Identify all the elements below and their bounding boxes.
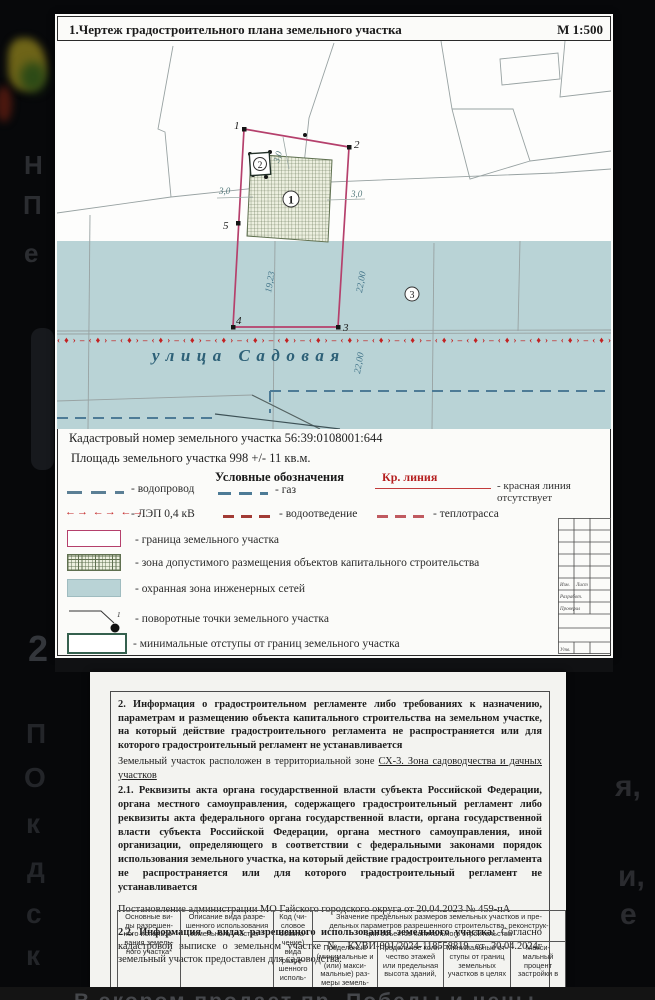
table-col-description: Описание вида разре- шенного использован… xyxy=(181,911,274,991)
table-sub-limits: Предельные (минимальные и (или) макси- м… xyxy=(313,942,378,991)
red-line-desc: - красная линия отсутствует xyxy=(497,480,613,504)
plot-area: Площадь земельного участка 998 +/- 11 кв… xyxy=(71,451,311,466)
table-group-header: Значение предельных размеров земельных у… xyxy=(313,911,566,942)
gas-symbol xyxy=(218,492,268,495)
zone-1-number: 1 xyxy=(288,193,294,207)
bg-letter: П xyxy=(26,718,46,750)
gas-label: - газ xyxy=(275,484,296,496)
red-line-symbol xyxy=(375,488,491,489)
svg-text:Изм.: Изм. xyxy=(559,583,570,588)
min-offsets-symbol xyxy=(67,633,127,654)
zone-3-number: 3 xyxy=(410,290,415,301)
bg-letter: е xyxy=(24,238,38,269)
svg-text:1: 1 xyxy=(234,120,240,132)
table-col-main-uses: Основные ви- ды разрешен- ного использо-… xyxy=(118,911,181,991)
legend-header: Условные обозначения xyxy=(215,470,344,485)
red-line-label: Кр. линия xyxy=(382,470,437,485)
parameters-table: Основные ви- ды разрешен- ного использо-… xyxy=(117,910,566,991)
document-page-1[interactable]: 1.Чертеж градостроительного плана земель… xyxy=(55,14,613,658)
svg-text:2: 2 xyxy=(354,139,360,151)
zone-2-number: 2 xyxy=(257,160,263,171)
water-supply-label: - водопровод xyxy=(131,483,194,495)
bg-letter: с xyxy=(26,898,42,930)
construction-zone-label: - зона допустимого размещения объектов к… xyxy=(135,557,479,569)
svg-text:3,0: 3,0 xyxy=(218,186,231,196)
bottom-clipped-text: В экором продает пр. Победы и цены xyxy=(74,990,536,1000)
bg-letter: д xyxy=(27,852,45,884)
water-supply-symbol xyxy=(67,491,124,494)
sewerage-label: - водоотведение xyxy=(279,508,357,520)
heating-symbol xyxy=(377,515,427,518)
protection-zone-label: - охранная зона инженерных сетей xyxy=(135,583,305,595)
zone-statement: Земельный участок расположен в территори… xyxy=(118,756,378,767)
table-sub-offsets: Минимальные от- ступы от границ земельны… xyxy=(444,942,511,991)
site-plan-svg: 2 1 3 1 2 3 4 5 3,0 3,0 3,0 19,2 xyxy=(57,41,611,429)
screenshot-root: { "page1": { "title": "1.Чертеж градостр… xyxy=(0,0,655,1000)
table-sub-floors: Предельное коли- чество этажей или преде… xyxy=(378,942,444,991)
bg-letter: Н xyxy=(24,150,43,181)
bg-letter: П xyxy=(23,190,42,221)
bg-letter: е xyxy=(620,898,637,932)
svg-text:5: 5 xyxy=(223,220,229,232)
svg-text:4: 4 xyxy=(236,315,242,327)
svg-text:Утв.: Утв. xyxy=(560,648,570,653)
street-name-label: улица Садовая xyxy=(150,346,346,365)
page-gap xyxy=(55,658,613,672)
document-page-2[interactable]: 2. Информация о градостроительном реглам… xyxy=(90,672,566,1000)
site-plan-map: 2 1 3 1 2 3 4 5 3,0 3,0 3,0 19,2 xyxy=(57,41,611,429)
svg-text:3: 3 xyxy=(342,322,349,334)
cadastral-number: Кадастровый номер земельного участка 56:… xyxy=(69,431,383,446)
min-offset-box: 2 xyxy=(249,152,270,175)
section2-1-heading: 2.1. Реквизиты акта органа государственн… xyxy=(118,785,542,892)
section2-heading: 2. Информация о градостроительном реглам… xyxy=(118,699,542,751)
heating-label: - теплотрасса xyxy=(433,508,499,520)
bg-letter: я, xyxy=(615,770,641,804)
background-logo-blob-green xyxy=(20,62,46,92)
background-panel xyxy=(31,328,54,470)
table-sub-percent: Макси- мальный процент застройки в xyxy=(511,942,566,991)
svg-text:Разработ.: Разработ. xyxy=(559,595,582,600)
title-block-stamp: Изм. Лист Разработ. Проверил Утв. xyxy=(558,518,611,654)
bottom-clipped-strip: В экором продает пр. Победы и цены xyxy=(0,987,655,1000)
background-logo-blob-red xyxy=(0,86,12,122)
bg-letter: и, xyxy=(618,860,645,894)
power-line-label: - ЛЭП 0,4 кВ xyxy=(131,508,195,520)
table-col-code: Код (чи- словое обозна- чение) вида разр… xyxy=(274,911,313,991)
sewerage-symbol xyxy=(223,515,273,518)
plot-boundary-label: - граница земельного участка xyxy=(135,534,279,546)
bg-letter: 2 xyxy=(28,628,48,670)
turning-points-label: - поворотные точки земельного участка xyxy=(135,613,329,625)
bg-letter: к xyxy=(26,808,40,840)
map-scale: М 1:500 xyxy=(557,22,603,38)
bg-letter: О xyxy=(24,762,46,794)
svg-text:Лист: Лист xyxy=(575,583,588,588)
plot-boundary-symbol xyxy=(67,530,121,547)
bg-letter: к xyxy=(26,940,40,972)
svg-text:Проверил: Проверил xyxy=(559,607,580,612)
protection-zone-symbol xyxy=(67,579,121,597)
min-offsets-label: - минимальные отступы от границ земельно… xyxy=(133,638,400,650)
page-title: 1.Чертеж градостроительного плана земель… xyxy=(69,22,402,38)
construction-zone-symbol xyxy=(67,554,121,571)
svg-text:3,0: 3,0 xyxy=(350,189,363,199)
svg-text:1: 1 xyxy=(117,611,121,619)
